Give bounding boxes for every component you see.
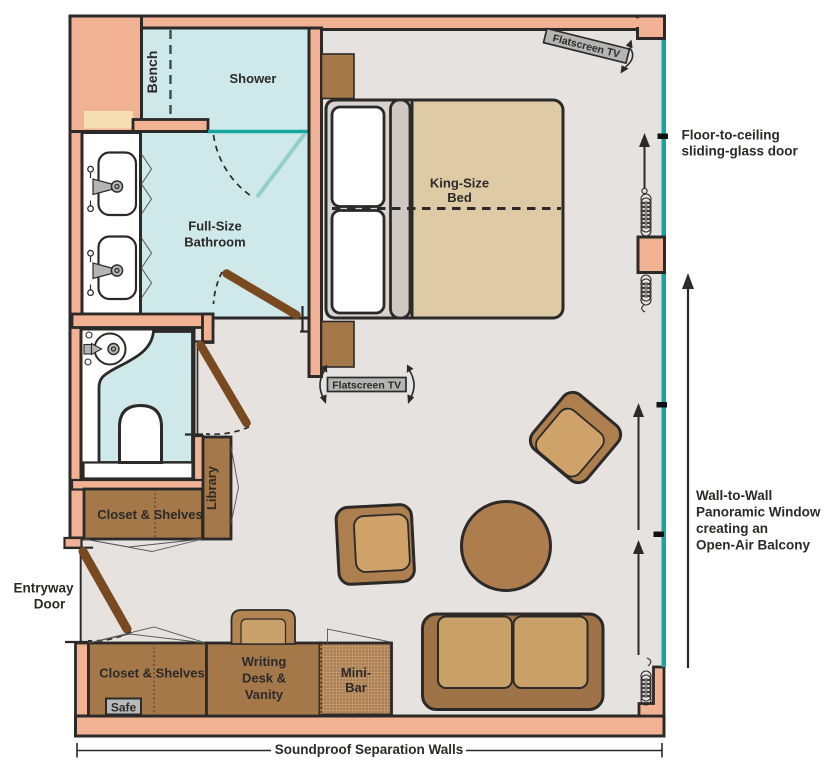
svg-text:Flatscreen TV: Flatscreen TV	[332, 380, 401, 392]
svg-text:King-Size: King-Size	[430, 176, 489, 191]
svg-text:Bed: Bed	[447, 190, 472, 205]
svg-text:Shower: Shower	[230, 71, 277, 86]
svg-text:Mini-: Mini-	[341, 665, 371, 680]
svg-text:Floor-to-ceiling: Floor-to-ceiling	[682, 128, 780, 143]
svg-text:Safe: Safe	[111, 701, 137, 715]
svg-text:Door: Door	[34, 597, 66, 612]
svg-text:Entryway: Entryway	[13, 581, 74, 596]
svg-text:Bench: Bench	[144, 51, 160, 94]
svg-text:Bar: Bar	[345, 680, 367, 695]
svg-text:Vanity: Vanity	[245, 687, 284, 702]
svg-text:Closet & Shelves: Closet & Shelves	[99, 666, 205, 681]
svg-text:Bathroom: Bathroom	[184, 235, 245, 250]
svg-text:Full-Size: Full-Size	[188, 219, 241, 234]
svg-text:Desk &: Desk &	[242, 671, 286, 686]
svg-text:sliding-glass door: sliding-glass door	[682, 144, 799, 159]
svg-text:Wall-to-Wall: Wall-to-Wall	[696, 488, 772, 503]
svg-text:Open-Air Balcony: Open-Air Balcony	[696, 538, 811, 553]
svg-text:Library: Library	[204, 465, 219, 510]
svg-text:Panoramic Window: Panoramic Window	[696, 505, 821, 520]
svg-text:Writing: Writing	[242, 654, 287, 669]
svg-text:Closet & Shelves: Closet & Shelves	[97, 507, 203, 522]
svg-text:creating an: creating an	[696, 521, 768, 536]
svg-text:Soundproof Separation Walls: Soundproof Separation Walls	[275, 742, 464, 757]
